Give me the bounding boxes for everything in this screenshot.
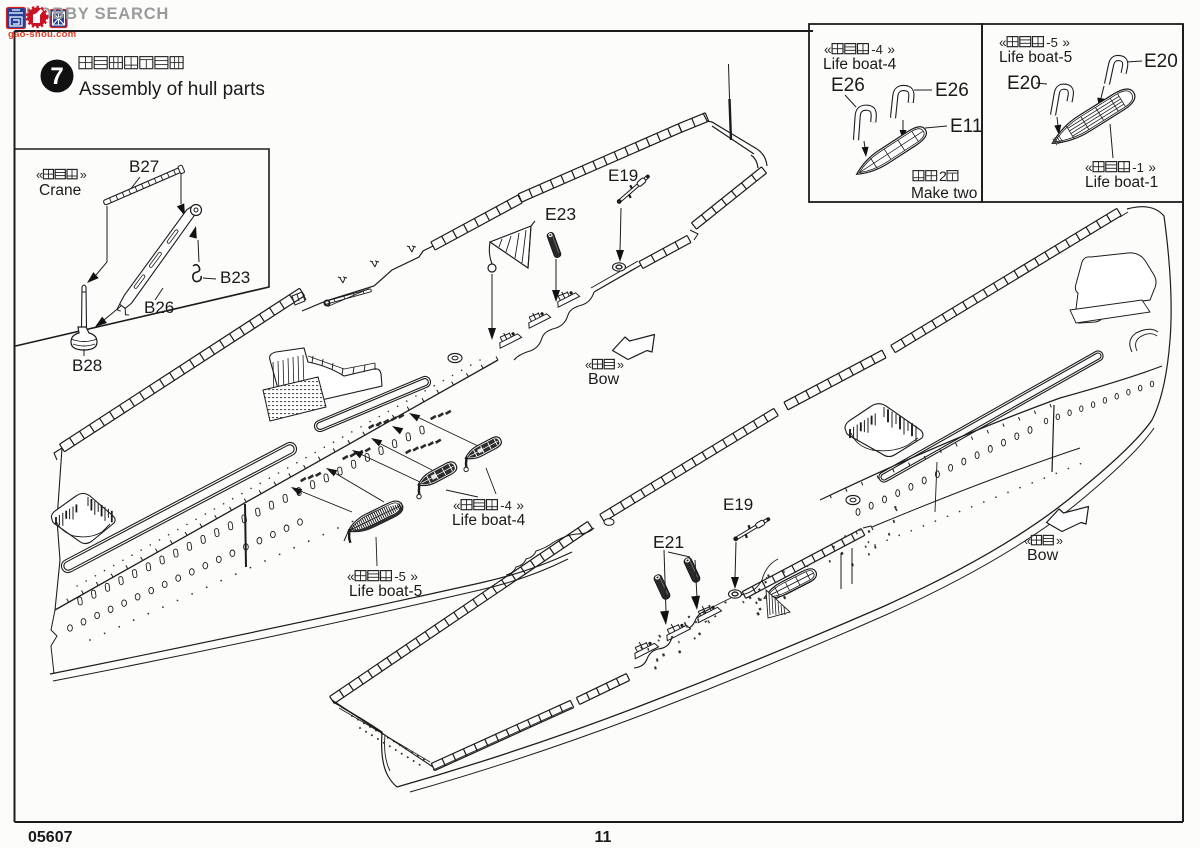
svg-text:HOBBY SEARCH: HOBBY SEARCH (26, 5, 169, 23)
svg-text:B27: B27 (129, 157, 159, 176)
svg-text:Bow: Bow (588, 371, 620, 388)
svg-text:-4: -4 (500, 498, 512, 513)
svg-text:«: « (453, 498, 461, 513)
svg-text:»: » (1062, 35, 1070, 50)
svg-text:«: « (999, 35, 1007, 50)
svg-text:B28: B28 (72, 356, 102, 375)
svg-text:«: « (585, 358, 592, 372)
svg-text:05607: 05607 (28, 829, 73, 846)
svg-text:»: » (1148, 160, 1156, 175)
svg-text:Life boat-5: Life boat-5 (349, 583, 422, 600)
svg-text:7: 7 (50, 63, 63, 90)
svg-text:E20: E20 (1007, 73, 1041, 94)
svg-text:E19: E19 (608, 166, 638, 185)
svg-text:Life boat-4: Life boat-4 (452, 512, 526, 529)
svg-text:«: « (1085, 160, 1093, 175)
svg-text:«: « (1024, 534, 1031, 548)
svg-text:2: 2 (939, 168, 947, 184)
svg-text:-5: -5 (1046, 35, 1058, 50)
svg-text:B23: B23 (220, 268, 250, 287)
svg-text:«: « (36, 168, 43, 182)
svg-text:«: « (824, 42, 832, 57)
svg-text:»: » (617, 358, 624, 372)
svg-text:»: » (80, 168, 87, 182)
svg-text:»: » (887, 42, 895, 57)
svg-text:Crane: Crane (39, 182, 81, 199)
svg-text:Bow: Bow (1027, 547, 1059, 564)
svg-text:Life boat-4: Life boat-4 (823, 56, 897, 73)
svg-text:»: » (516, 498, 524, 513)
svg-text:»: » (1056, 534, 1063, 548)
svg-text:E21: E21 (653, 532, 684, 552)
svg-text:E20: E20 (1144, 51, 1178, 72)
svg-text:Make two: Make two (911, 185, 977, 202)
svg-text:E11: E11 (950, 116, 982, 137)
svg-text:Assembly of hull parts: Assembly of hull parts (79, 79, 265, 100)
svg-text:E26: E26 (935, 80, 969, 101)
svg-text:Life boat-5: Life boat-5 (999, 49, 1072, 66)
svg-text:«: « (347, 569, 355, 584)
svg-text:E23: E23 (545, 204, 576, 224)
svg-text:-1: -1 (1132, 160, 1144, 175)
svg-text:»: » (410, 569, 418, 584)
svg-text:-5: -5 (394, 569, 406, 584)
svg-text:E26: E26 (831, 75, 865, 96)
svg-text:Life boat-1: Life boat-1 (1085, 174, 1158, 191)
svg-text:-4: -4 (871, 42, 883, 57)
svg-text:gao-shou.com: gao-shou.com (8, 29, 77, 40)
svg-text:11: 11 (595, 829, 612, 846)
svg-text:B26: B26 (144, 298, 174, 317)
svg-text:E19: E19 (723, 495, 753, 514)
